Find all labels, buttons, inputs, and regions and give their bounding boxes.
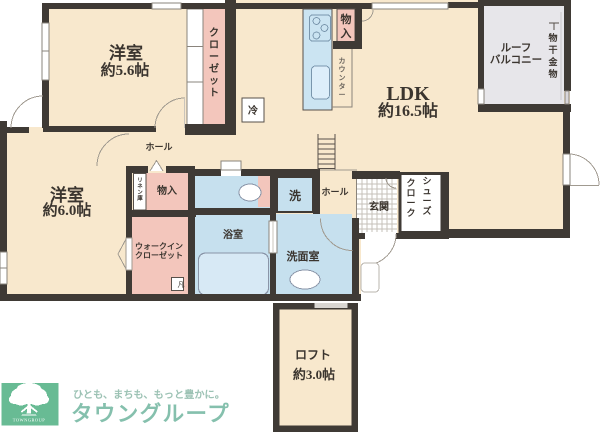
svg-text:カ: カ	[339, 57, 346, 65]
svg-text:リ: リ	[137, 177, 143, 184]
svg-text:物: 物	[548, 32, 557, 43]
svg-text:シ: シ	[422, 176, 431, 186]
svg-text:物: 物	[548, 68, 557, 79]
svg-text:ー: ー	[422, 196, 431, 206]
svg-text:ロフト: ロフト	[295, 348, 331, 362]
svg-text:バルコニー: バルコニー	[490, 54, 542, 66]
svg-text:ン: ン	[339, 74, 346, 82]
svg-text:ン: ン	[137, 189, 143, 196]
svg-text:クローゼット: クローゼット	[135, 250, 183, 260]
svg-text:ゼ: ゼ	[209, 62, 219, 75]
svg-text:ク: ク	[209, 27, 219, 39]
svg-text:ズ: ズ	[422, 205, 431, 216]
svg-text:玄関: 玄関	[369, 200, 389, 213]
svg-text:ネ: ネ	[137, 182, 143, 190]
svg-text:TOWNGROUP: TOWNGROUP	[13, 418, 46, 423]
svg-text:ルーフ: ルーフ	[501, 42, 532, 54]
svg-text:ッ: ッ	[209, 76, 219, 87]
svg-text:約16.5帖: 約16.5帖	[378, 101, 438, 120]
svg-text:約5.6帖: 約5.6帖	[101, 61, 150, 79]
svg-text:物入: 物入	[157, 184, 177, 197]
svg-text:洗: 洗	[289, 188, 301, 203]
svg-text:ュ: ュ	[422, 186, 431, 196]
svg-text:凡: 凡	[178, 281, 185, 289]
svg-text:ク: ク	[406, 178, 415, 188]
svg-text:ク: ク	[406, 208, 415, 218]
svg-text:ロ: ロ	[406, 188, 415, 198]
svg-text:ホール: ホール	[321, 187, 348, 197]
svg-text:庫: 庫	[137, 194, 143, 202]
svg-text:金: 金	[547, 56, 558, 67]
svg-text:冷: 冷	[248, 104, 258, 117]
svg-text:ト: ト	[209, 87, 219, 99]
svg-text:洋室: 洋室	[50, 185, 84, 205]
svg-text:浴室: 浴室	[223, 228, 243, 241]
svg-text:ウ: ウ	[339, 65, 346, 74]
svg-text:物: 物	[341, 12, 352, 26]
svg-text:ー: ー	[209, 52, 219, 63]
svg-text:ロ: ロ	[209, 40, 219, 51]
svg-text:ー: ー	[406, 198, 415, 208]
svg-text:LDK: LDK	[386, 83, 430, 105]
svg-text:洋室: 洋室	[109, 43, 143, 63]
svg-text:干: 干	[548, 45, 557, 55]
svg-text:タ: タ	[339, 82, 346, 91]
svg-text:約3.0帖: 約3.0帖	[293, 367, 335, 382]
svg-text:ウォークイン: ウォークイン	[135, 241, 183, 251]
svg-text:洗面室: 洗面室	[287, 249, 320, 263]
svg-text:タウングループ: タウングループ	[71, 401, 230, 426]
svg-text:入: 入	[341, 27, 352, 40]
svg-text:約6.0帖: 約6.0帖	[43, 201, 92, 219]
svg-text:ひとも、まちも、もっと豊かに。: ひとも、まちも、もっと豊かに。	[73, 388, 225, 401]
svg-text:ホール: ホール	[145, 142, 172, 152]
svg-text:ー: ー	[339, 91, 346, 99]
